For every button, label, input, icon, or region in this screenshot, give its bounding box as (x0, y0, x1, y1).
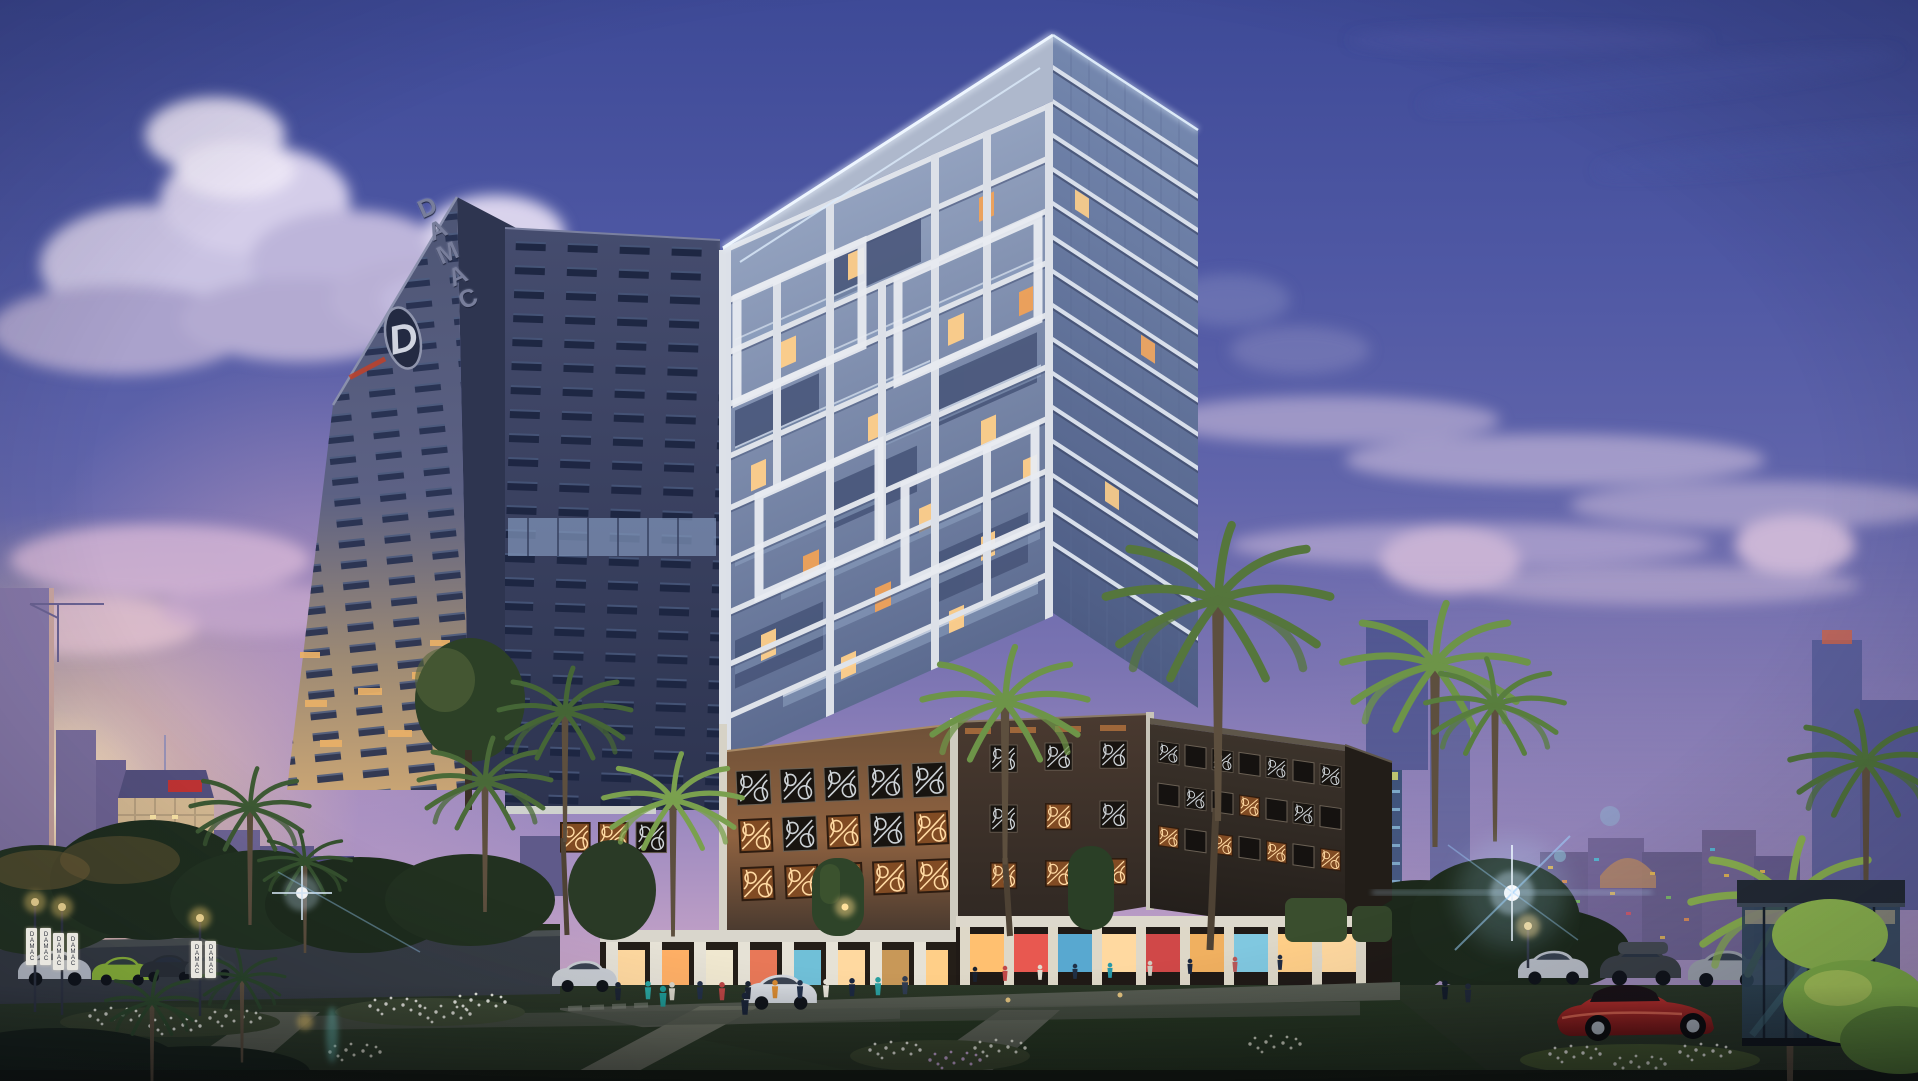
architectural-rendering-scene: D (0, 0, 1918, 1081)
vignette (0, 0, 1918, 1081)
scene-canvas: D (0, 0, 1918, 1081)
